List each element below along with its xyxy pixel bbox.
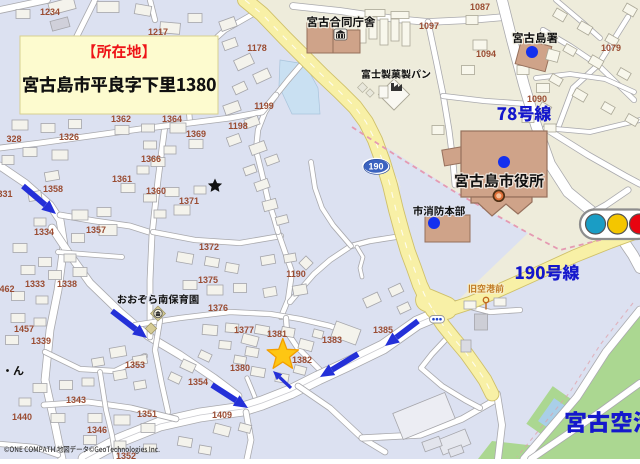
svg-text:1362: 1362 [111,114,131,124]
svg-text:1366: 1366 [141,154,161,164]
svg-text:1354: 1354 [188,377,208,387]
svg-text:1375: 1375 [198,275,218,285]
svg-text:1352: 1352 [116,451,136,459]
svg-text:1338: 1338 [57,279,77,289]
svg-text:1364: 1364 [162,114,182,124]
svg-text:1383: 1383 [322,335,342,345]
svg-text:462: 462 [0,284,15,294]
svg-text:1190: 1190 [286,269,306,279]
svg-text:1440: 1440 [12,412,32,422]
svg-text:1381: 1381 [267,329,287,339]
svg-text:1371: 1371 [179,196,199,206]
svg-text:331: 331 [0,189,13,199]
svg-text:1380: 1380 [230,363,250,373]
svg-text:328: 328 [6,134,21,144]
svg-text:190: 190 [368,161,383,171]
svg-text:1376: 1376 [208,303,228,313]
svg-text:1361: 1361 [112,174,132,184]
svg-text:1199: 1199 [254,101,274,111]
svg-text:1339: 1339 [31,336,51,346]
svg-text:1333: 1333 [25,279,45,289]
svg-text:1382: 1382 [292,355,312,365]
svg-text:1094: 1094 [476,49,496,59]
svg-text:1358: 1358 [43,184,63,194]
svg-text:1234: 1234 [40,7,60,17]
svg-text:1097: 1097 [419,21,439,31]
svg-text:1357: 1357 [86,225,106,235]
svg-text:1372: 1372 [199,242,219,252]
svg-text:1369: 1369 [186,129,206,139]
svg-text:1087: 1087 [470,2,490,12]
svg-text:1457: 1457 [14,324,34,334]
svg-text:1178: 1178 [247,43,267,53]
svg-text:1346: 1346 [87,425,107,435]
svg-text:1334: 1334 [34,227,54,237]
svg-text:1351: 1351 [137,409,157,419]
svg-text:1326: 1326 [59,132,79,142]
svg-text:1360: 1360 [146,186,166,196]
svg-text:1409: 1409 [212,410,232,420]
svg-text:1385: 1385 [373,325,393,335]
svg-text:1353: 1353 [125,360,145,370]
svg-text:1090: 1090 [527,94,547,104]
svg-text:1343: 1343 [66,395,86,405]
svg-text:1079: 1079 [601,43,621,53]
svg-text:1198: 1198 [228,121,248,131]
svg-text:1377: 1377 [234,325,254,335]
